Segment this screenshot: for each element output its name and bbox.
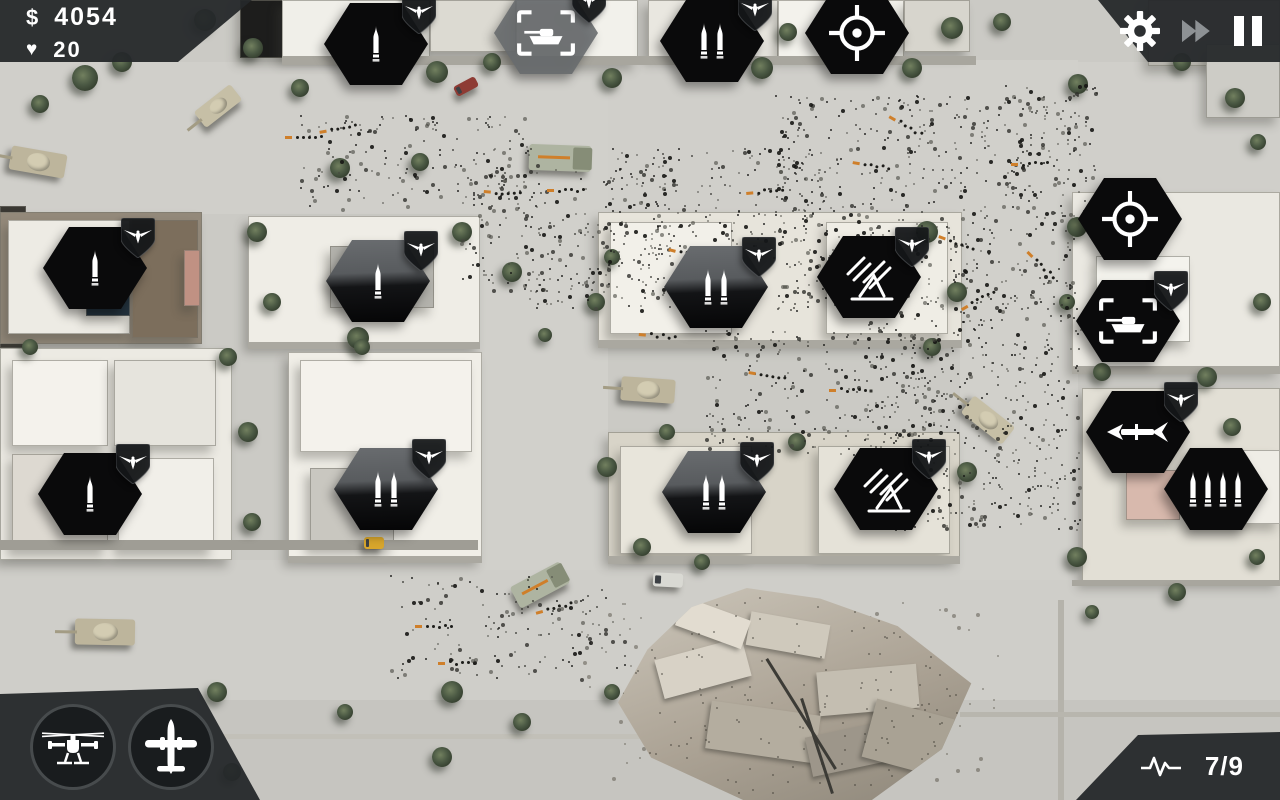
tank-target-icon [515, 6, 577, 60]
vehicle-car [653, 572, 684, 588]
palm-tree [22, 339, 38, 355]
rank-eagle-badge-icon [402, 0, 436, 34]
palm-tree [411, 153, 429, 171]
palm-tree [633, 538, 651, 556]
tank-target-icon [1097, 294, 1159, 348]
palm-tree [243, 513, 261, 531]
double-bullet-icon [698, 22, 726, 60]
double-bullet-icon [372, 470, 400, 508]
tower-quad-bullet[interactable] [1164, 448, 1268, 530]
missile-icon [1106, 419, 1170, 445]
compound-wall [598, 340, 962, 348]
palm-tree [432, 747, 452, 767]
single-bullet-icon [84, 475, 96, 513]
double-bullet-icon [702, 268, 730, 306]
palm-tree [452, 222, 472, 242]
rank-eagle-badge [1164, 382, 1198, 422]
palm-tree [72, 65, 98, 91]
infantry-swarm [300, 115, 302, 117]
palm-tree [31, 95, 49, 113]
tower-icon-wrap [1164, 448, 1268, 530]
palm-tree [441, 681, 463, 703]
infantry-swarm [612, 148, 614, 150]
palm-tree [1059, 294, 1075, 310]
target-reticle-icon [828, 4, 886, 62]
tank-turret [93, 622, 119, 641]
palm-tree [1093, 363, 1111, 381]
rank-eagle-badge [912, 439, 946, 479]
palm-tree [1197, 367, 1217, 387]
wave-panel: 7/9 [1076, 732, 1280, 800]
lives-display: ♥ 20 [0, 35, 252, 64]
fast-forward-icon [1182, 19, 1212, 43]
air-support-panel [0, 688, 260, 800]
vehicle-truck [529, 144, 592, 172]
palm-tree [779, 23, 797, 41]
palm-tree [1085, 605, 1099, 619]
tower-icon-wrap [805, 0, 909, 74]
tower-icon-wrap [1078, 178, 1182, 260]
building-roof [114, 360, 216, 446]
palm-tree [604, 684, 620, 700]
vehicle-tank [75, 618, 135, 645]
rank-eagle-badge-icon [740, 442, 774, 482]
fast-forward-button[interactable] [1182, 19, 1212, 43]
rank-eagle-badge-icon [1164, 382, 1198, 422]
palm-tree [354, 339, 370, 355]
heart-icon: ♥ [26, 39, 39, 61]
money-display: $ 4054 [0, 3, 252, 32]
palm-tree [993, 13, 1011, 31]
rank-eagle-badge-icon [412, 439, 446, 479]
rank-eagle-badge-icon [742, 237, 776, 277]
rank-eagle-badge [895, 227, 929, 267]
pause-button[interactable] [1234, 16, 1262, 46]
single-bullet-icon [89, 249, 101, 287]
wave-pulse-icon [1141, 752, 1181, 780]
road-surface [480, 60, 608, 570]
single-bullet-icon [370, 25, 382, 63]
rank-eagle-badge-icon [404, 231, 438, 271]
compound-wall [960, 712, 1280, 717]
palm-tree [1253, 293, 1271, 311]
rank-eagle-badge-icon [116, 444, 150, 484]
flak-gun-icon [857, 463, 915, 515]
palm-tree [694, 554, 710, 570]
target-reticle-icon [1101, 190, 1159, 248]
building-roof [12, 360, 108, 446]
attack-helicopter-icon [41, 723, 105, 771]
infantry-swarm [1005, 85, 1007, 87]
rank-eagle-badge [740, 442, 774, 482]
palm-tree [337, 704, 353, 720]
wave-counter: 7/9 [1205, 751, 1244, 782]
infantry-swarm [525, 225, 527, 227]
palm-tree [513, 713, 531, 731]
rank-eagle-badge-icon [895, 227, 929, 267]
rank-eagle-badge [738, 0, 772, 31]
palm-tree [941, 17, 963, 39]
truck-stripe [538, 155, 570, 159]
palm-tree [502, 262, 522, 282]
single-bullet-icon [372, 262, 384, 300]
palm-tree [604, 249, 620, 265]
compound-wall [1058, 600, 1064, 800]
game-viewport: $ 4054 ♥ 20 [0, 0, 1280, 800]
palm-tree [947, 282, 967, 302]
rank-eagle-badge [116, 444, 150, 484]
lives-value: 20 [53, 37, 81, 63]
palm-tree [923, 338, 941, 356]
palm-tree [291, 79, 309, 97]
road-surface [960, 60, 1078, 580]
pause-icon [1234, 16, 1244, 46]
resources-panel: $ 4054 ♥ 20 [0, 0, 252, 62]
palm-tree [330, 158, 350, 178]
palm-tree [788, 433, 806, 451]
truck-stripe [521, 579, 548, 595]
quad-bullet-icon [1187, 469, 1245, 509]
rubble-slab [746, 611, 831, 658]
rank-eagle-badge [404, 231, 438, 271]
vehicle-car_yellow [364, 537, 384, 549]
car-windshield [655, 575, 661, 584]
settings-button[interactable] [1120, 11, 1160, 51]
infantry-swarm [705, 330, 707, 332]
compound-wall [608, 556, 960, 564]
palm-tree [1068, 74, 1088, 94]
building-roof [300, 360, 472, 452]
settings-gear-icon [1120, 11, 1160, 51]
building-roof [184, 250, 200, 306]
rank-eagle-badge [402, 0, 436, 34]
flak-gun-icon [840, 251, 898, 303]
palm-tree [957, 462, 977, 482]
palm-tree [219, 348, 237, 366]
tank-barrel [55, 630, 78, 633]
rank-eagle-badge-icon [121, 218, 155, 258]
rank-eagle-badge [572, 0, 606, 23]
palm-tree [247, 222, 267, 242]
tank-turret [637, 381, 661, 400]
rank-eagle-badge-icon [572, 0, 606, 23]
rank-eagle-badge-icon [1154, 271, 1188, 311]
tower-reticle[interactable] [805, 0, 909, 74]
palm-tree [659, 424, 675, 440]
palm-tree [1168, 583, 1186, 601]
infantry-swarm [580, 600, 582, 602]
map [0, 0, 1280, 800]
rank-eagle-badge [412, 439, 446, 479]
rank-eagle-badge [742, 237, 776, 277]
infantry-swarm [775, 95, 777, 97]
compound-wall [288, 556, 482, 563]
helicopter-support-button[interactable] [30, 704, 116, 790]
palm-tree [587, 293, 605, 311]
palm-tree [538, 328, 552, 342]
money-value: 4054 [54, 3, 118, 32]
palm-tree [1067, 547, 1087, 567]
infantry-swarm [460, 165, 462, 167]
palm-tree [597, 457, 617, 477]
palm-tree [1250, 134, 1266, 150]
palm-tree [1249, 549, 1265, 565]
airstrike-support-button[interactable] [128, 704, 214, 790]
rank-eagle-badge [121, 218, 155, 258]
compound-wall [0, 540, 478, 550]
rank-eagle-badge [1154, 271, 1188, 311]
rank-eagle-badge-icon [912, 439, 946, 479]
palm-tree [263, 293, 281, 311]
palm-tree [1225, 88, 1245, 108]
game-controls-panel [1068, 0, 1280, 62]
palm-tree [602, 68, 622, 88]
vehicle-tank [620, 376, 676, 404]
car-windshield [456, 86, 463, 94]
car-windshield [366, 539, 370, 546]
rank-eagle-badge-icon [738, 0, 772, 31]
truck-cab [573, 148, 592, 170]
infantry-swarm [390, 575, 392, 577]
palm-tree [1223, 418, 1241, 436]
dollar-icon: $ [26, 5, 40, 31]
palm-tree [238, 422, 258, 442]
tank-turret [25, 152, 51, 173]
double-bullet-icon [700, 473, 728, 511]
airstrike-plane-icon [143, 718, 199, 776]
palm-tree [426, 61, 448, 83]
tower-reticle[interactable] [1078, 178, 1182, 260]
